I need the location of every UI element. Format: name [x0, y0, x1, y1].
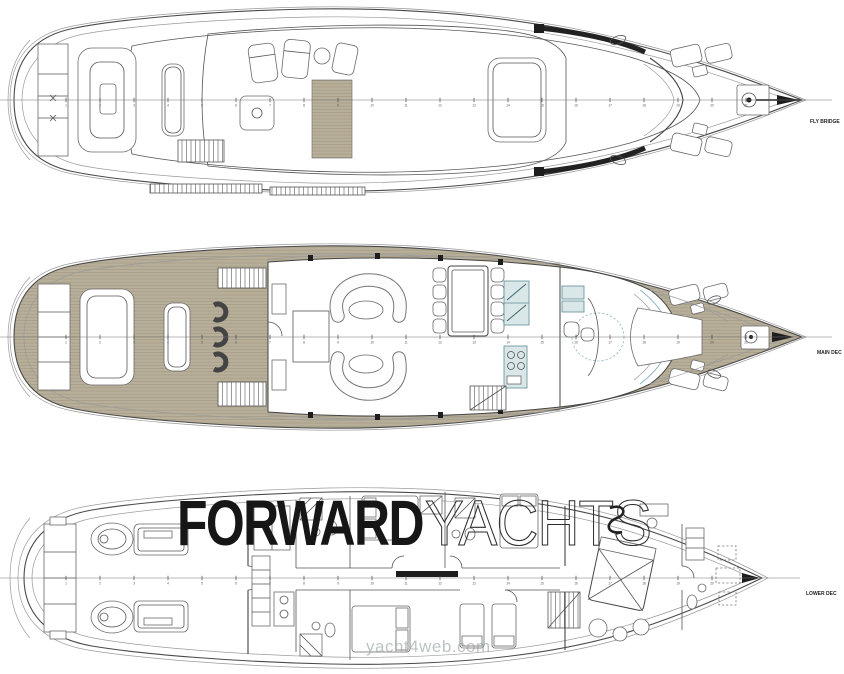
fly-arch-base [534, 167, 544, 176]
fly-seat-unit [240, 96, 274, 130]
station-number: 4 [167, 341, 169, 345]
lower-deck-label: LOWER DEC [806, 591, 837, 597]
main-salon-cabinet [272, 284, 286, 314]
station-number: 9 [337, 582, 339, 586]
station-number: 14 [506, 104, 510, 108]
station-number: 3 [133, 104, 135, 108]
main-coffee-table-port [349, 355, 383, 373]
main-dining-table [448, 266, 488, 336]
station-number: 5 [201, 341, 203, 345]
station-number: 7 [269, 104, 271, 108]
main-coffee-table-stbd [349, 301, 383, 319]
station-number: 8 [303, 341, 305, 345]
fly-bridge-label: FLY BRIDGE [810, 119, 840, 125]
main-boarding-stairs-stbd [218, 268, 266, 288]
station-number: 12 [438, 104, 442, 108]
station-number: 19 [676, 582, 680, 586]
station-number: 7 [269, 341, 271, 345]
station-number: 7 [269, 582, 271, 586]
station-number: 1 [65, 582, 67, 586]
station-number: 16 [574, 582, 578, 586]
lower-pouf [589, 619, 607, 637]
station-number: 1 [65, 341, 67, 345]
fly-arch-base [534, 24, 544, 33]
yacht-plans-page: 123456789101112131415161718192021 FLY BR… [0, 0, 844, 674]
station-number: 19 [676, 104, 680, 108]
main-deck-label: MAIN DEC [817, 350, 842, 356]
lower-transom-tab [50, 631, 66, 639]
station-number: 4 [167, 582, 169, 586]
station-number: 20 [710, 341, 714, 345]
lower-pouf [613, 627, 627, 641]
station-number: 16 [574, 341, 578, 345]
station-number: 13 [472, 582, 476, 586]
station-number: 12 [438, 341, 442, 345]
station-number: 17 [608, 341, 612, 345]
station-number: 14 [506, 341, 510, 345]
fly-teak-deck-patch [312, 80, 352, 158]
station-number: 19 [676, 341, 680, 345]
station-number: 21 [744, 104, 748, 108]
fly-side-ladder-strip [150, 184, 262, 193]
yacht-deck-plans-canvas: 123456789101112131415161718192021 FLY BR… [0, 0, 844, 674]
main-helm-unit [562, 301, 584, 312]
station-number: 11 [404, 104, 408, 108]
station-number: 16 [574, 104, 578, 108]
fly-side-ladder-strip [270, 187, 365, 195]
station-number: 10 [370, 341, 374, 345]
station-number: 18 [642, 104, 646, 108]
station-number: 15 [540, 341, 544, 345]
lower-transom-tab [50, 517, 66, 525]
station-number: 14 [506, 582, 510, 586]
station-number: 6 [235, 582, 237, 586]
station-number: 17 [608, 582, 612, 586]
main-helm-unit [562, 286, 584, 299]
main-salon-cabinet [272, 360, 286, 390]
station-number: 1 [65, 104, 67, 108]
lower-shelf-unit [252, 556, 270, 626]
station-number: 10 [370, 582, 374, 586]
station-number: 8 [303, 582, 305, 586]
brand-watermark-bold: FORWARD [177, 487, 423, 559]
main-deck-plan: 123456789101112131415161718192021 MAIN D… [0, 244, 842, 430]
station-number: 4 [167, 104, 169, 108]
station-number: 3 [133, 582, 135, 586]
fly-aft-table [100, 84, 116, 114]
station-number: 13 [472, 341, 476, 345]
brand-watermark-outline: YACHTS [425, 487, 651, 559]
station-number: 5 [201, 104, 203, 108]
fly-stairs-down [178, 140, 224, 162]
station-number: 8 [303, 104, 305, 108]
site-watermark: yacht4web.com [366, 637, 491, 656]
station-number: 6 [235, 341, 237, 345]
fly-side-table [314, 48, 330, 64]
station-number: 2 [99, 104, 101, 108]
station-number: 20 [710, 104, 714, 108]
lower-corridor-wall-bar [396, 571, 458, 577]
station-number: 15 [540, 582, 544, 586]
main-boarding-stairs-port [218, 382, 266, 406]
station-number: 11 [404, 341, 408, 345]
station-number: 6 [235, 104, 237, 108]
station-number: 10 [370, 104, 374, 108]
lower-sink-unit [274, 592, 294, 626]
lower-pouf [633, 619, 649, 635]
station-number: 11 [404, 582, 408, 586]
station-number: 12 [438, 582, 442, 586]
station-number: 20 [710, 582, 714, 586]
station-number: 3 [133, 341, 135, 345]
station-number: 18 [642, 341, 646, 345]
station-number: 2 [99, 341, 101, 345]
station-number: 2 [99, 582, 101, 586]
station-number: 13 [472, 104, 476, 108]
lower-engine-port [91, 601, 188, 633]
station-number: 21 [744, 341, 748, 345]
lower-engine-stbd [91, 523, 188, 555]
station-number: 17 [608, 104, 612, 108]
station-number: 9 [337, 104, 339, 108]
station-number: 5 [201, 582, 203, 586]
main-pilot-chair [581, 328, 594, 341]
fly-bridge-plan: 123456789101112131415161718192021 FLY BR… [0, 7, 840, 195]
station-number: 18 [642, 582, 646, 586]
station-number: 15 [540, 104, 544, 108]
main-pilot-chair [564, 322, 579, 337]
station-number: 9 [337, 341, 339, 345]
